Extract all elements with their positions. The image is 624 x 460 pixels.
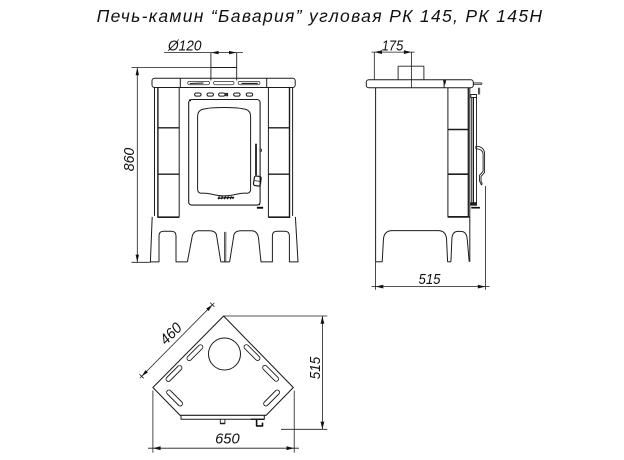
svg-text:Печь-камин “Бавария” угловая Р: Печь-камин “Бавария” угловая РК 145, РК …	[97, 6, 544, 26]
svg-text:860: 860	[121, 147, 138, 171]
svg-text:Ø120: Ø120	[167, 37, 202, 54]
svg-text:515: 515	[419, 271, 442, 288]
svg-text:175: 175	[382, 37, 404, 54]
svg-text:515: 515	[307, 356, 324, 379]
svg-text:650: 650	[215, 431, 240, 448]
